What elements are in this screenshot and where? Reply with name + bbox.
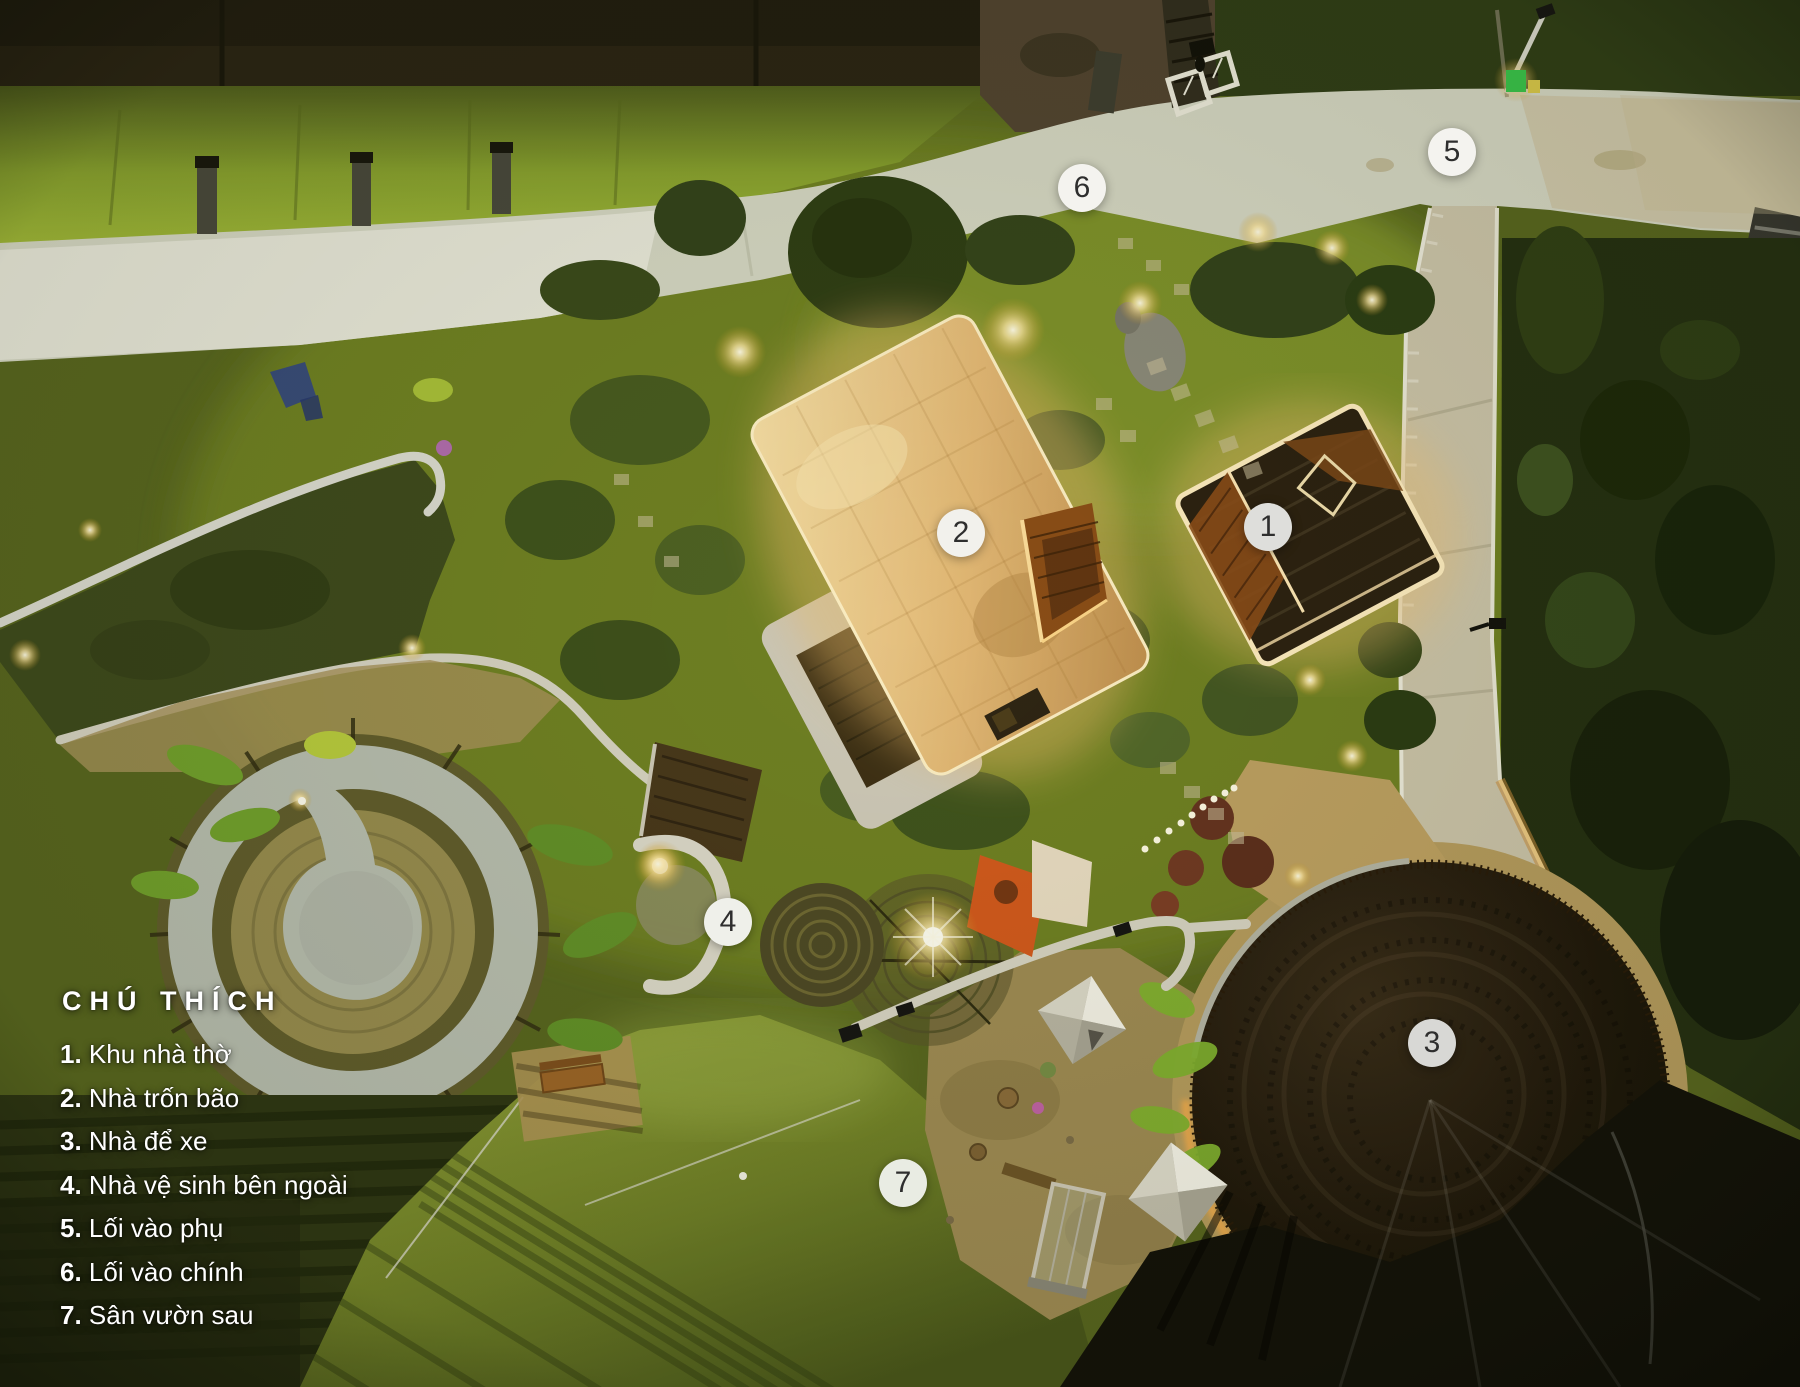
aerial-site-plan: 1234567 CHÚ THÍCH 1. Khu nhà thờ2. Nhà t… bbox=[0, 0, 1800, 1387]
legend-item-3: 3. Nhà để xe bbox=[60, 1120, 348, 1164]
legend-item-5: 5. Lối vào phụ bbox=[60, 1207, 348, 1251]
legend-item-number: 5. bbox=[60, 1213, 82, 1243]
map-marker-1: 1 bbox=[1244, 503, 1292, 551]
legend-item-number: 7. bbox=[60, 1300, 82, 1330]
map-marker-3: 3 bbox=[1408, 1019, 1456, 1067]
legend-title: CHÚ THÍCH bbox=[62, 986, 348, 1017]
legend: CHÚ THÍCH 1. Khu nhà thờ2. Nhà trốn bão3… bbox=[60, 986, 348, 1338]
legend-item-number: 1. bbox=[60, 1039, 82, 1069]
legend-item-2: 2. Nhà trốn bão bbox=[60, 1077, 348, 1121]
legend-item-number: 4. bbox=[60, 1170, 82, 1200]
map-marker-5: 5 bbox=[1428, 128, 1476, 176]
legend-list: 1. Khu nhà thờ2. Nhà trốn bão3. Nhà để x… bbox=[60, 1033, 348, 1338]
legend-item-number: 2. bbox=[60, 1083, 82, 1113]
legend-item-7: 7. Sân vườn sau bbox=[60, 1294, 348, 1338]
legend-item-4: 4. Nhà vệ sinh bên ngoài bbox=[60, 1164, 348, 1208]
map-marker-7: 7 bbox=[879, 1159, 927, 1207]
map-marker-6: 6 bbox=[1058, 164, 1106, 212]
legend-item-number: 6. bbox=[60, 1257, 82, 1287]
map-marker-2: 2 bbox=[937, 509, 985, 557]
legend-item-1: 1. Khu nhà thờ bbox=[60, 1033, 348, 1077]
legend-item-number: 3. bbox=[60, 1126, 82, 1156]
map-marker-4: 4 bbox=[704, 898, 752, 946]
legend-item-6: 6. Lối vào chính bbox=[60, 1251, 348, 1295]
